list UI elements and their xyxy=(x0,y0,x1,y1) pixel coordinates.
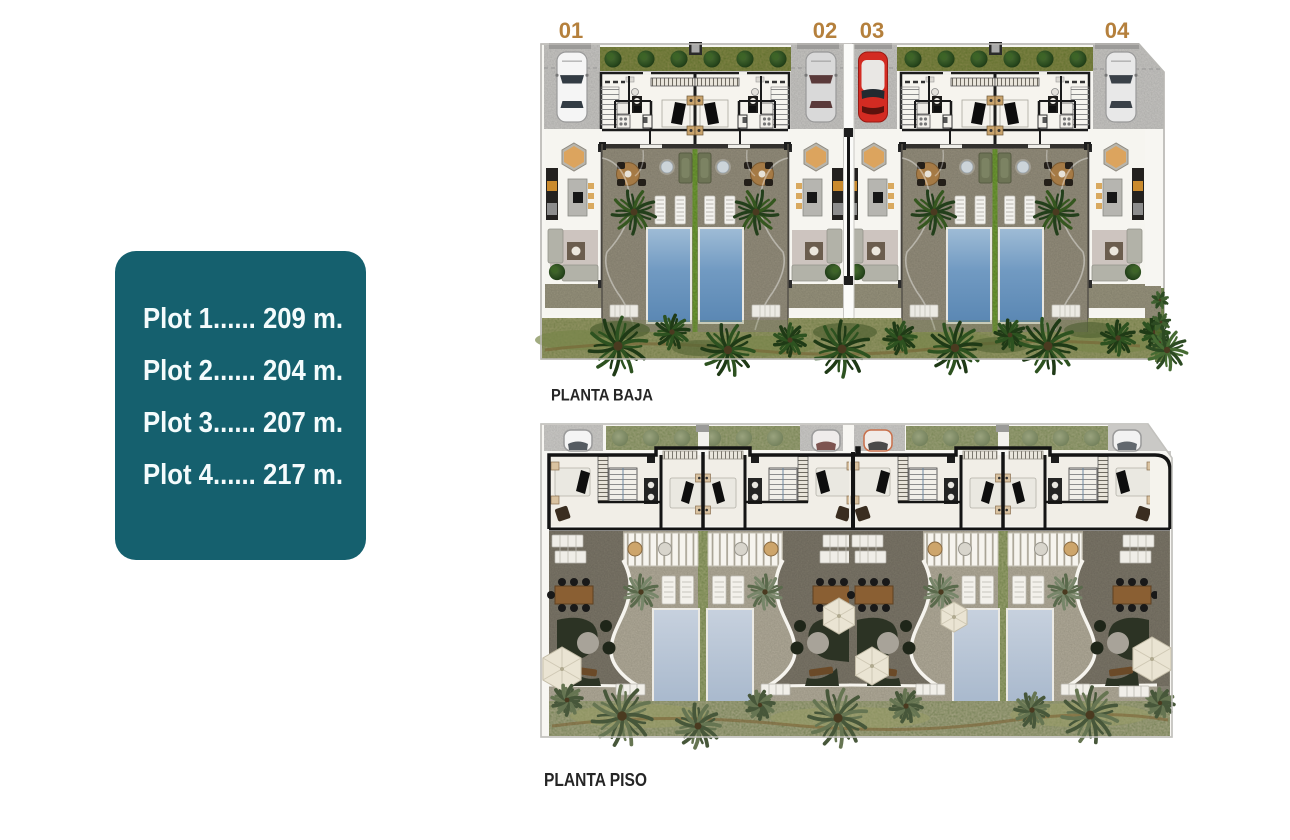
svg-text:04: 04 xyxy=(1105,18,1130,43)
svg-text:PLANTA BAJA: PLANTA BAJA xyxy=(551,386,653,405)
svg-text:Plot 4...... 217 m.: Plot 4...... 217 m. xyxy=(143,459,343,491)
svg-text:PLANTA PISO: PLANTA PISO xyxy=(544,769,647,790)
svg-text:02: 02 xyxy=(813,18,837,43)
svg-text:Plot 2...... 204 m.: Plot 2...... 204 m. xyxy=(143,355,343,387)
svg-text:03: 03 xyxy=(860,18,884,43)
svg-text:Plot 1...... 209 m.: Plot 1...... 209 m. xyxy=(143,303,343,335)
svg-text:01: 01 xyxy=(559,18,583,43)
svg-text:Plot 3...... 207 m.: Plot 3...... 207 m. xyxy=(143,407,343,439)
